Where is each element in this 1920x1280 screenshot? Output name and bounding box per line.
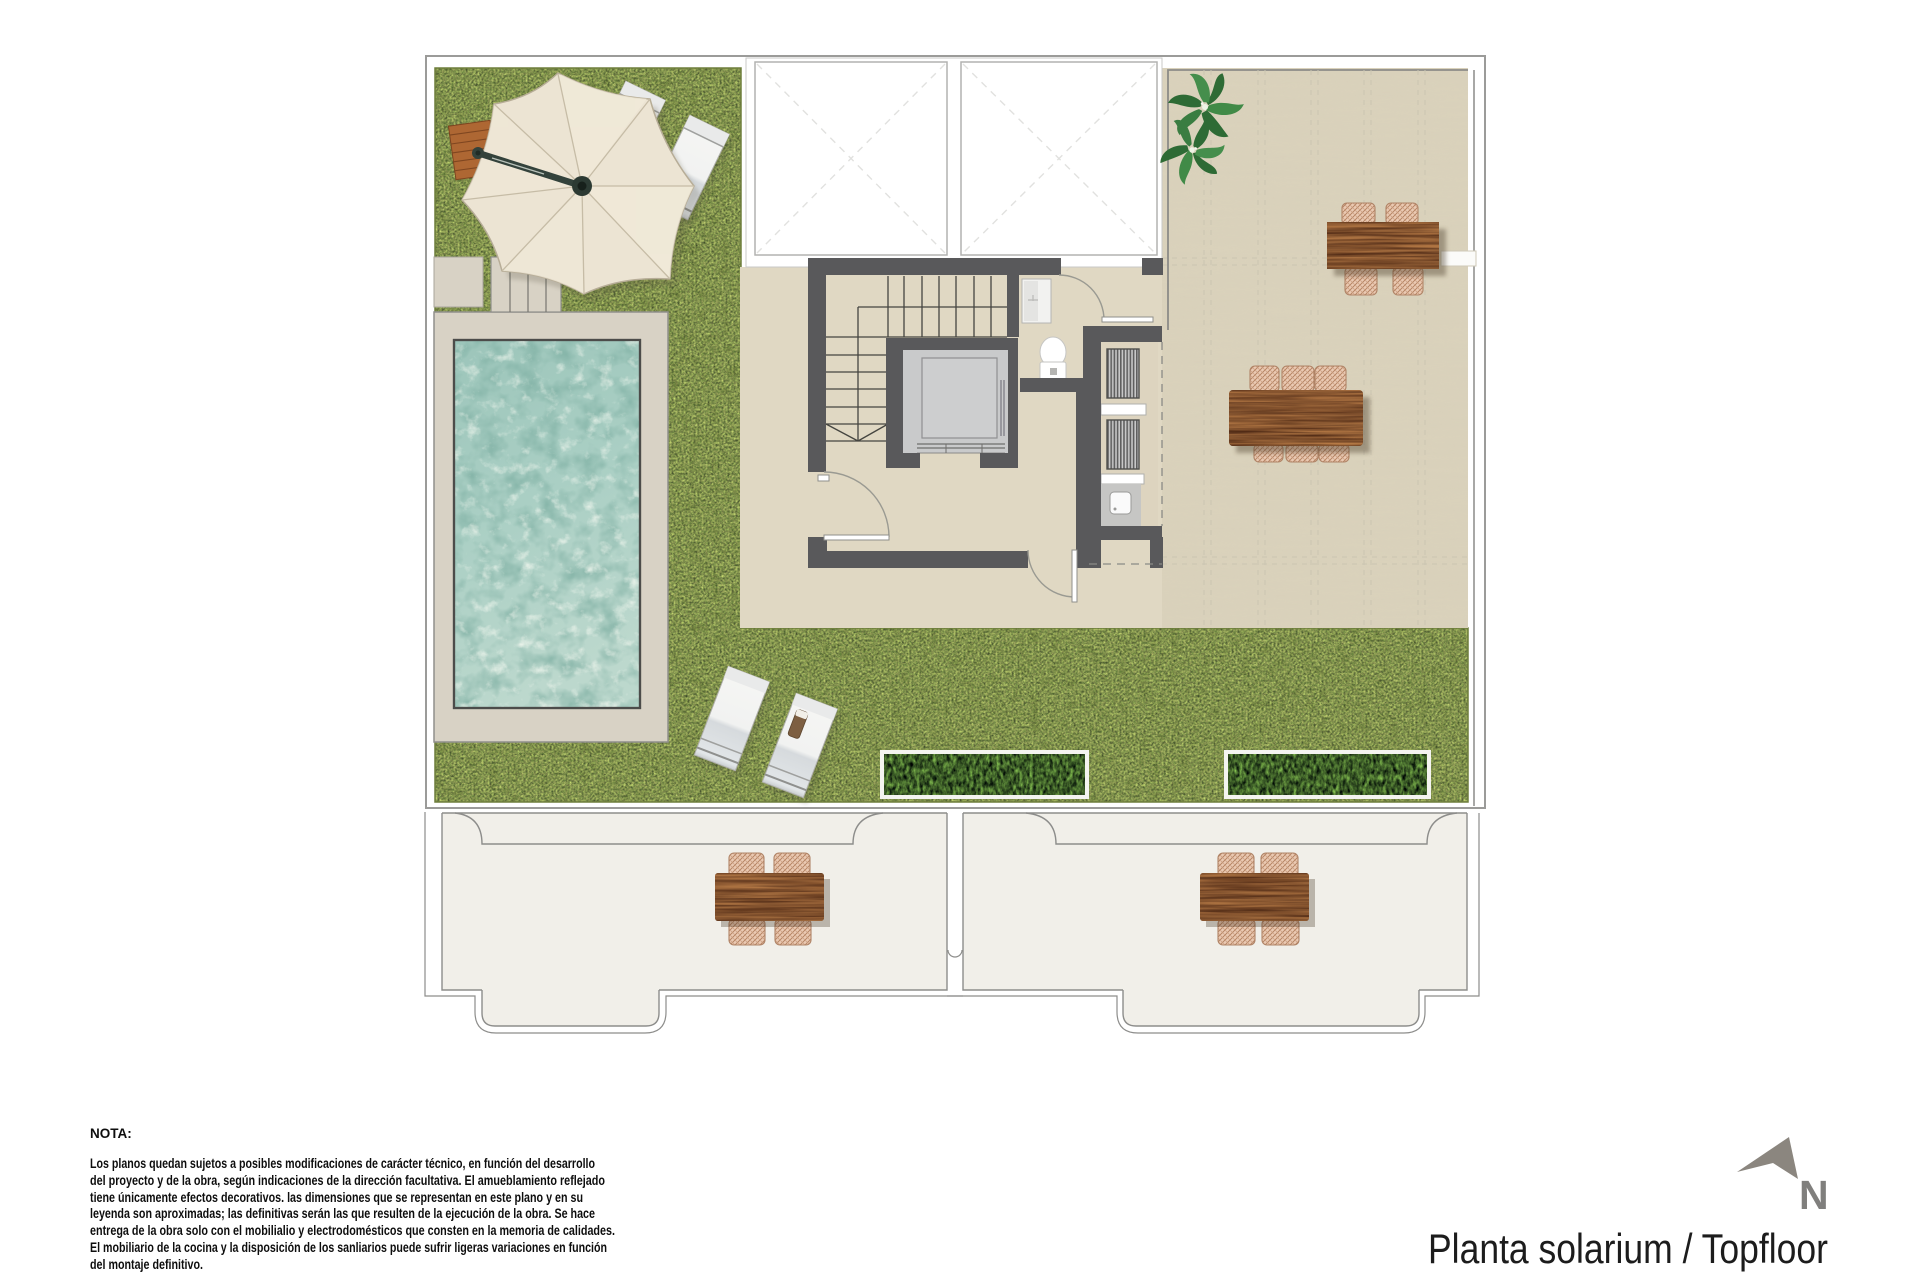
svg-text:leyenda son aproximadas; las d: leyenda son aproximadas; las definitivas… — [90, 1205, 595, 1221]
svg-text:El mobiliario de la cocina y l: El mobiliario de la cocina y la disposic… — [90, 1239, 607, 1255]
svg-text:del montaje definitivo.: del montaje definitivo. — [90, 1256, 203, 1272]
svg-text:N: N — [1799, 1172, 1829, 1218]
svg-text:Planta solarium / Topfloor: Planta solarium / Topfloor — [1428, 1225, 1828, 1272]
svg-text:entrega de la obra solo con el: entrega de la obra solo con el mobiliali… — [90, 1222, 615, 1238]
svg-text:tiene únicamente efectos decor: tiene únicamente efectos decorativos. la… — [90, 1189, 583, 1205]
svg-text:del proyecto y de la obra, seg: del proyecto y de la obra, según indicac… — [90, 1172, 605, 1188]
svg-text:Los planos quedan sujetos a po: Los planos quedan sujetos a posibles mod… — [90, 1155, 595, 1171]
svg-text:NOTA:: NOTA: — [90, 1126, 132, 1141]
